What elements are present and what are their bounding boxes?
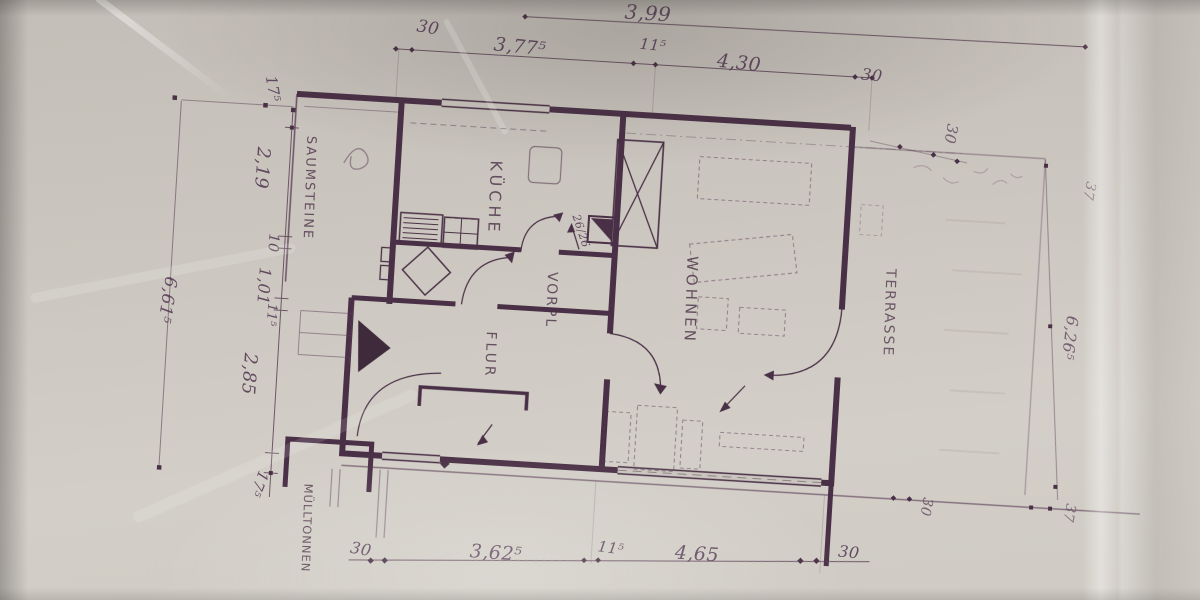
- entrance-triangle: [355, 320, 392, 374]
- room-label-kueche: KÜCHE: [484, 160, 506, 236]
- dim-bottom-30-right: 30: [837, 541, 860, 562]
- dim-top-30-left: 30: [415, 16, 441, 40]
- floor-plan-photo: 3,99 30 3,77⁵ 11⁵ 4,30 30 30 37 6,26⁵ 30…: [0, 0, 1200, 600]
- dim-left-285: 2,85: [237, 352, 261, 395]
- room-label-vorplatz: VORPL: [542, 272, 560, 329]
- dim-right-30-bottom: 30: [916, 496, 935, 517]
- dim-left-10: 10: [264, 233, 281, 253]
- dimension-lines: [154, 0, 1085, 600]
- room-label-flur: FLUR: [481, 331, 499, 379]
- room-label-wohnen: WOHNEN: [680, 256, 701, 344]
- dim-top-430: 4,30: [716, 50, 762, 77]
- furniture: [602, 152, 886, 484]
- dim-top-115: 11⁵: [639, 35, 667, 56]
- dim-left-219: 2,19: [250, 146, 274, 189]
- faded-marks: [329, 129, 1029, 454]
- chimney-symbol: [587, 216, 615, 244]
- dim-bottom-465: 4,65: [674, 541, 720, 566]
- room-label-terrasse: TERRASSE: [879, 269, 898, 358]
- walls: [270, 93, 856, 566]
- dim-left-115: 11⁵: [263, 303, 280, 327]
- entry-steps: [298, 303, 353, 364]
- dim-bottom-30-left: 30: [349, 538, 373, 560]
- dim-top-overall: 3,99: [624, 0, 672, 27]
- dim-right-37-bottom: 37: [1059, 502, 1078, 523]
- dim-right-30-top: 30: [940, 123, 961, 146]
- dim-bottom-362: 3,62⁵: [469, 540, 523, 566]
- dim-left-101: 1,01: [253, 267, 275, 306]
- dimension-ticks: [145, 0, 1088, 600]
- shower-diamond: [401, 246, 452, 297]
- dim-top-30-right: 30: [860, 64, 883, 85]
- dim-bottom-115: 11⁵: [597, 537, 626, 559]
- plan-linework: [0, 0, 1200, 600]
- site-lines: [270, 94, 1162, 584]
